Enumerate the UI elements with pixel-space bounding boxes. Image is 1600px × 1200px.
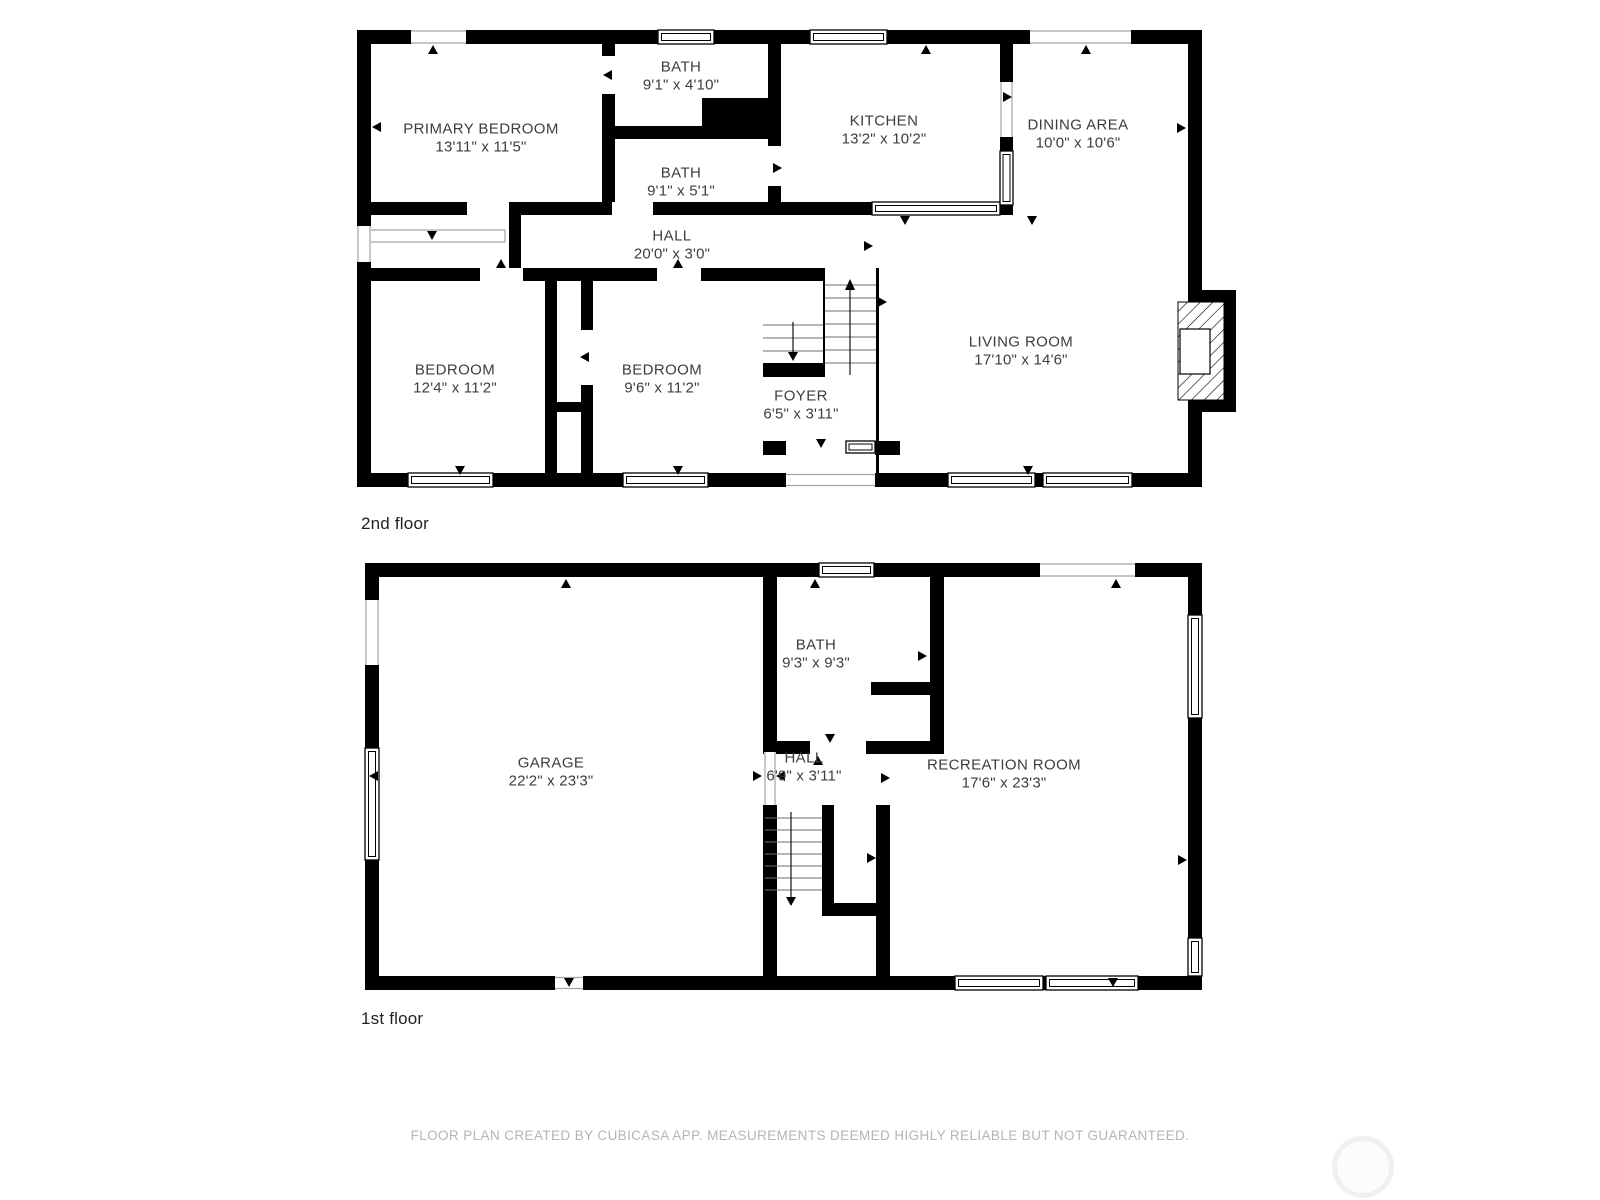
room-name: HALL	[766, 750, 841, 768]
room-dims: 6'5" x 3'11"	[763, 405, 838, 423]
room-label-garage: GARAGE 22'2" x 23'3"	[509, 755, 594, 790]
window	[1188, 615, 1202, 718]
room-dims: 22'2" x 23'3"	[509, 772, 594, 790]
room-dims: 9'6" x 11'2"	[622, 379, 702, 397]
window	[1030, 30, 1131, 44]
room-dims: 17'10" x 14'6"	[969, 351, 1073, 369]
room-label-primary-bedroom: PRIMARY BEDROOM 13'11" x 11'5"	[403, 121, 558, 156]
room-name: GARAGE	[509, 755, 594, 773]
window	[1000, 151, 1013, 205]
watermark-circle-icon	[1332, 1136, 1394, 1198]
room-label-dining-area: DINING AREA 10'0" x 10'6"	[1027, 117, 1128, 152]
room-label-bath-lower: BATH 9'1" x 5'1"	[647, 165, 715, 200]
window	[1188, 938, 1202, 976]
window	[872, 202, 1000, 215]
room-name: BEDROOM	[622, 362, 702, 380]
room-name: FOYER	[763, 388, 838, 406]
window	[1040, 563, 1135, 577]
window	[623, 473, 708, 487]
stairs-down-arrow-icon	[786, 812, 796, 906]
room-name: DINING AREA	[1027, 117, 1128, 135]
room-name: PRIMARY BEDROOM	[403, 121, 558, 139]
fireplace	[1178, 290, 1236, 412]
pass-through-opening	[1000, 82, 1013, 137]
room-label-bath-1f: BATH 9'3" x 9'3"	[782, 637, 850, 672]
room-name: BEDROOM	[413, 362, 497, 380]
room-name: LIVING ROOM	[969, 334, 1073, 352]
room-label-bedroom-1: BEDROOM 12'4" x 11'2"	[413, 362, 497, 397]
room-dims: 13'11" x 11'5"	[403, 138, 558, 156]
window	[408, 473, 493, 487]
window	[819, 563, 874, 577]
room-name: KITCHEN	[842, 113, 927, 131]
window	[1046, 976, 1138, 990]
room-label-living-room: LIVING ROOM 17'10" x 14'6"	[969, 334, 1073, 369]
room-dims: 10'0" x 10'6"	[1027, 134, 1128, 152]
room-label-hall-1f: HALL 6'9" x 3'11"	[766, 750, 841, 785]
window	[365, 748, 379, 860]
room-name: BATH	[647, 165, 715, 183]
room-name: BATH	[782, 637, 850, 655]
entry-door	[786, 441, 875, 487]
window	[658, 30, 714, 44]
room-dims: 12'4" x 11'2"	[413, 379, 497, 397]
window	[955, 976, 1043, 990]
room-label-bath-upper: BATH 9'1" x 4'10"	[643, 59, 719, 94]
window	[948, 473, 1035, 487]
closet-lines	[371, 230, 505, 242]
window	[357, 226, 371, 262]
room-dims: 17'6" x 23'3"	[927, 774, 1081, 792]
room-dims: 9'1" x 4'10"	[643, 76, 719, 94]
room-dims: 6'9" x 3'11"	[766, 767, 841, 785]
window	[411, 30, 466, 44]
room-dims: 13'2" x 10'2"	[842, 130, 927, 148]
floor-1-caption: 1st floor	[361, 1009, 423, 1029]
room-label-kitchen: KITCHEN 13'2" x 10'2"	[842, 113, 927, 148]
stairs-down-arrow-icon	[788, 322, 798, 361]
window	[365, 600, 379, 665]
room-name: RECREATION ROOM	[927, 757, 1081, 775]
floor-plan-graphics	[0, 0, 1600, 1200]
room-label-foyer: FOYER 6'5" x 3'11"	[763, 388, 838, 423]
room-name: BATH	[643, 59, 719, 77]
stairs-up-arrow-icon	[845, 279, 855, 375]
room-dims: 9'1" x 5'1"	[647, 182, 715, 200]
window	[1043, 473, 1132, 487]
room-label-hall-2f: HALL 20'0" x 3'0"	[634, 228, 710, 263]
floor-2-caption: 2nd floor	[361, 514, 429, 534]
floor-plan-page: PRIMARY BEDROOM 13'11" x 11'5" BATH 9'1"…	[0, 0, 1600, 1200]
room-label-recreation-room: RECREATION ROOM 17'6" x 23'3"	[927, 757, 1081, 792]
room-name: HALL	[634, 228, 710, 246]
room-label-bedroom-2: BEDROOM 9'6" x 11'2"	[622, 362, 702, 397]
room-dims: 9'3" x 9'3"	[782, 654, 850, 672]
room-dims: 20'0" x 3'0"	[634, 245, 710, 263]
window	[810, 30, 887, 44]
